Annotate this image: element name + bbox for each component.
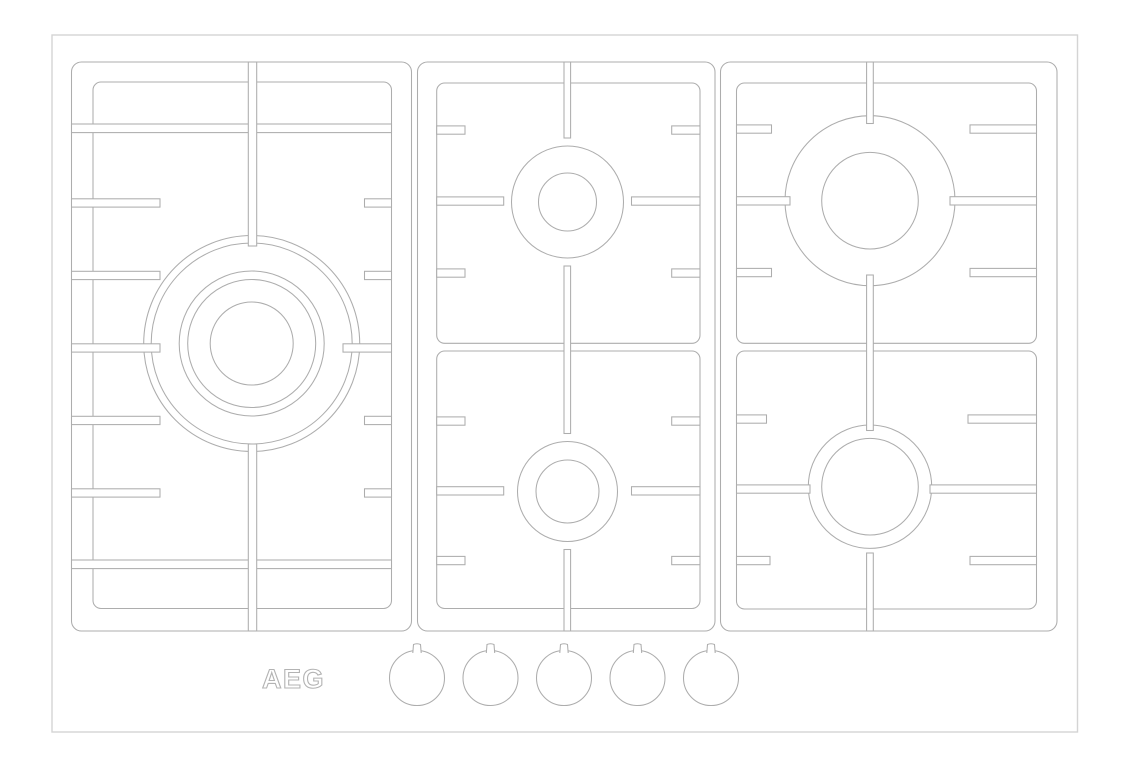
panel-middle-grate-finger xyxy=(437,269,465,277)
brand-logo-text: AEG xyxy=(262,664,325,694)
control-knob-1-pointer-nub xyxy=(413,644,421,653)
control-knob-3-body xyxy=(537,651,592,706)
cooktop-drawing-canvas: AEG xyxy=(0,0,1129,768)
panel-right-grate-finger xyxy=(970,556,1037,564)
panel-right-grate-finger xyxy=(930,485,1037,493)
panel-middle-grate-finger xyxy=(672,126,700,134)
control-knob-5-body xyxy=(684,651,739,706)
control-knob-1-body xyxy=(390,651,445,706)
panel-right-grate-finger xyxy=(737,268,772,276)
panel-left-grate-finger xyxy=(72,560,392,569)
panel-right-grate-finger xyxy=(737,556,771,564)
panel-middle-grate-finger xyxy=(672,417,700,425)
control-knob-4 xyxy=(610,644,665,706)
panel-left-grate-finger xyxy=(72,199,161,207)
panel-middle-grate-rail xyxy=(564,62,571,138)
cooktop-diagram: AEG xyxy=(0,0,1129,768)
control-knob-4-body xyxy=(610,651,665,706)
panel-right-grate-finger xyxy=(968,415,1037,423)
panel-right-grate-finger xyxy=(970,268,1037,276)
panel-middle-grate-finger xyxy=(632,487,701,495)
control-knob-3 xyxy=(537,644,592,706)
pan-support-panel-middle xyxy=(418,62,716,631)
wok-triple-crown-burner xyxy=(144,236,360,452)
panel-middle-grate-finger xyxy=(437,487,504,495)
panel-left-grate-finger xyxy=(72,489,161,497)
wok-triple-crown-burner-ring-5 xyxy=(210,302,293,385)
panel-right-grate-rail xyxy=(867,275,874,431)
control-knob-3-pointer-nub xyxy=(560,644,568,653)
panel-middle-grate-rail xyxy=(564,266,571,434)
panel-left-grate-finger xyxy=(72,271,161,279)
auxiliary-burner-bottom-ring-2 xyxy=(536,460,599,523)
panel-left-grate-finger xyxy=(365,271,392,279)
panel-right-grate-finger xyxy=(737,197,791,205)
panel-right-grate-rail xyxy=(867,62,874,124)
panel-middle-grate-finger xyxy=(437,197,504,205)
control-knob-5-pointer-nub xyxy=(707,644,715,653)
semi-rapid-burner-bottom-ring-2 xyxy=(822,438,919,535)
control-knob-2 xyxy=(463,644,518,706)
panel-middle-grate-finger xyxy=(437,126,465,134)
panel-right-grate-finger xyxy=(970,125,1037,133)
panel-left-grate-finger xyxy=(72,416,161,424)
control-knob-row xyxy=(390,644,739,706)
control-knob-2-pointer-nub xyxy=(486,644,494,653)
panel-middle-grate-finger xyxy=(672,269,700,277)
panel-right-grate-finger xyxy=(737,125,772,133)
pan-support-panel-left xyxy=(72,62,412,631)
panel-middle-grate-finger xyxy=(632,197,701,205)
control-knob-5 xyxy=(684,644,739,706)
panel-left-grate-finger xyxy=(365,199,392,207)
panel-middle-grate-finger xyxy=(437,556,465,564)
panel-right-grate-rail xyxy=(867,553,874,631)
pan-support-panel-right xyxy=(721,62,1058,631)
control-knob-4-pointer-nub xyxy=(633,644,641,653)
panel-left-grate-finger xyxy=(72,344,161,352)
panel-left-grate-finger xyxy=(365,489,392,497)
auxiliary-burner-bottom xyxy=(518,442,618,542)
panel-middle-grate-finger xyxy=(437,417,465,425)
panel-middle-grate-finger xyxy=(672,556,700,564)
semi-rapid-burner-top xyxy=(512,146,624,258)
rapid-burner-top xyxy=(785,116,955,286)
panel-left-grate-rail xyxy=(248,62,256,246)
panel-right-grate-finger xyxy=(737,485,811,493)
panel-left-grate-finger xyxy=(72,124,392,133)
panel-right-grate-finger xyxy=(950,197,1037,205)
panel-left-grate-finger xyxy=(343,344,392,352)
panel-right-grate-finger xyxy=(737,415,767,423)
panel-left-grate-rail xyxy=(248,444,256,631)
control-knob-1 xyxy=(390,644,445,706)
control-knob-2-body xyxy=(463,651,518,706)
panel-left-grate-finger xyxy=(365,416,392,424)
semi-rapid-burner-bottom xyxy=(808,425,931,548)
panel-middle-grate-rail xyxy=(564,550,571,632)
semi-rapid-burner-top-ring-2 xyxy=(539,173,597,231)
rapid-burner-top-ring-2 xyxy=(822,152,919,249)
